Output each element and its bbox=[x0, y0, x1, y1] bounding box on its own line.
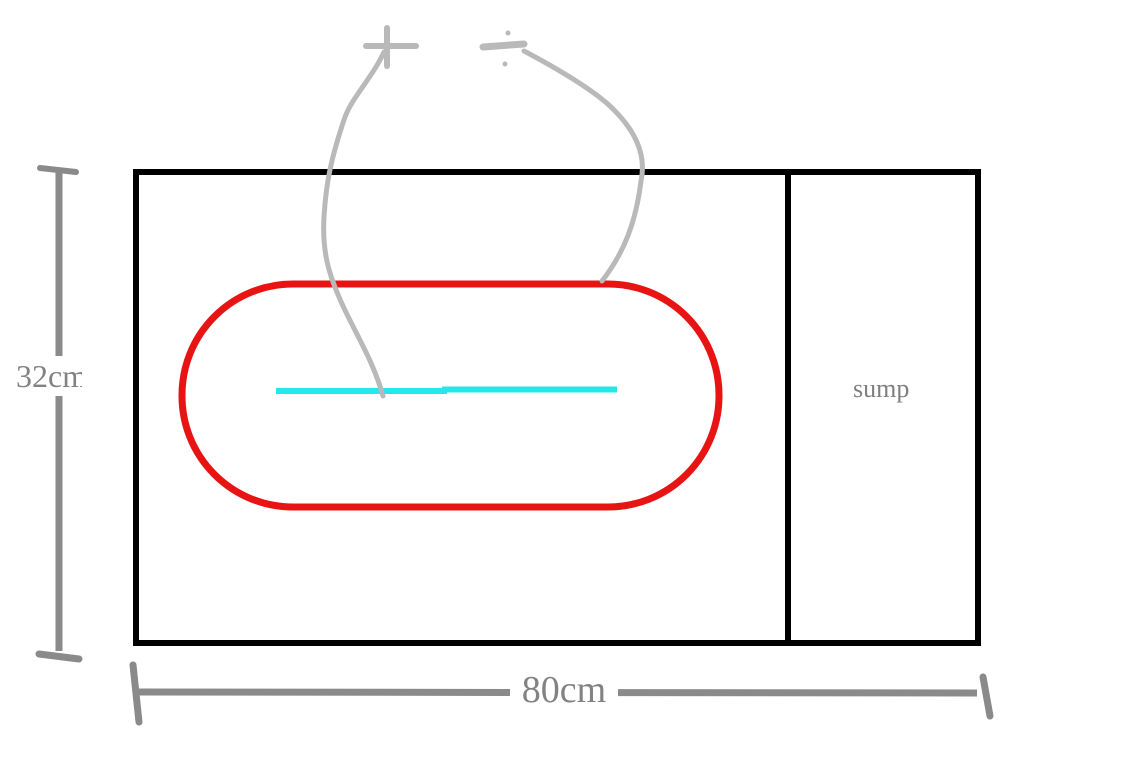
minus-icon bbox=[483, 31, 524, 67]
tank-outline bbox=[136, 172, 978, 643]
sump-label: sump bbox=[853, 374, 909, 404]
minus-dot-bottom bbox=[503, 62, 508, 67]
plus-icon bbox=[366, 28, 416, 66]
minus-stroke bbox=[483, 44, 524, 47]
width-dimension-cap-right bbox=[983, 677, 990, 716]
positive-wire bbox=[324, 52, 384, 396]
height-dimension-cap-bottom bbox=[39, 654, 79, 659]
width-dimension-label: 80cm bbox=[510, 666, 618, 714]
height-dimension-label: 32cm bbox=[16, 356, 82, 396]
negative-wire bbox=[524, 51, 642, 281]
red-loop-outline bbox=[182, 284, 719, 507]
tank-diagram bbox=[0, 0, 1141, 782]
height-dimension bbox=[39, 168, 79, 659]
minus-dot-top bbox=[506, 31, 511, 36]
paint-canvas: 32cm 80cm sump bbox=[0, 0, 1141, 782]
